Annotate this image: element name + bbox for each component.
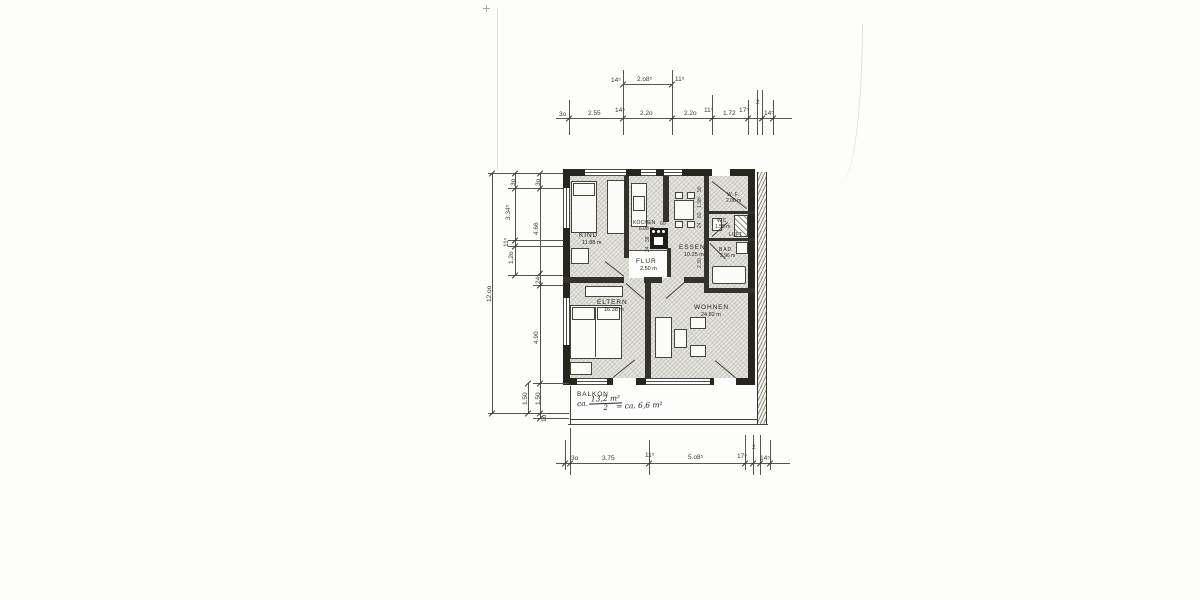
room-area-flur: 2.50 m: [640, 266, 657, 272]
wall-segment: [626, 169, 641, 176]
extension-line: [508, 246, 563, 247]
window: [585, 169, 626, 176]
room-area-eltern: 16.38 m: [604, 307, 624, 313]
eltern-wardrobe: [585, 286, 623, 297]
balcony-door-opening: [714, 378, 736, 385]
balcony-edge-line: [568, 424, 768, 425]
dim-label: 1.38⁵: [698, 196, 703, 208]
dim-label: 11⁵: [704, 107, 713, 114]
room-label-wohnen: WOHNEN: [694, 304, 729, 311]
interior-wall: [704, 176, 709, 290]
interior-wall: [663, 176, 669, 222]
dining-chair: [675, 221, 683, 228]
window: [563, 188, 570, 228]
wall-segment: [748, 169, 755, 385]
room-area-bad: 3.96 m: [720, 254, 735, 259]
extension-line: [570, 428, 571, 475]
dim-label: 60: [698, 212, 703, 218]
extension-line: [762, 90, 763, 135]
room-label-flur: FLUR: [636, 258, 657, 265]
dim-label: 90: [698, 186, 703, 192]
extension-line: [623, 70, 624, 135]
dim-label: 24: [698, 222, 703, 228]
balkon-note-denominator: 2: [603, 404, 608, 412]
dim-label: 14⁵: [760, 455, 770, 462]
kind-bed-pillow: [573, 183, 595, 196]
extension-line: [757, 90, 758, 135]
dim-label: 2: [756, 99, 760, 106]
dim-label: 11⁵: [645, 452, 654, 459]
dimension-line: [556, 463, 790, 464]
dim-label: 4.66: [533, 222, 540, 235]
dim-label: 14⁵: [615, 107, 625, 114]
wall-segment: [736, 378, 755, 385]
dim-label: 3o: [535, 179, 542, 186]
dim-label: 2.30: [698, 258, 703, 268]
wall-segment: [682, 169, 712, 176]
room-label-kind: KIND: [579, 232, 598, 239]
dim-label: 1.72: [723, 110, 736, 117]
coffee-table: [674, 329, 687, 348]
dim-label: 2: [752, 444, 756, 451]
washbasin: [736, 242, 748, 254]
registration-mark: [486, 5, 487, 12]
dim-label: 1.50: [522, 392, 529, 405]
dim-label: 38: [646, 236, 651, 242]
kind-dresser: [571, 248, 589, 264]
interior-wall: [624, 176, 629, 258]
dim-label: 3.75: [602, 455, 615, 462]
dim-label: 24: [535, 277, 542, 284]
dim-label: 5.o8⁵: [688, 454, 703, 461]
dim-label: 1.50: [535, 392, 542, 405]
extension-line: [770, 440, 771, 470]
interior-wall: [684, 277, 704, 283]
room-label-eltern: ELTERN: [597, 299, 628, 306]
eltern-dresser: [570, 362, 592, 375]
interior-wall: [667, 248, 671, 277]
scan-curve-artifact: [840, 24, 863, 184]
window: [664, 169, 682, 176]
interior-wall: [563, 277, 624, 283]
balcony-door-opening: [613, 378, 636, 385]
dim-label: 4.90: [533, 331, 540, 344]
room-label-essen: ESSEN: [679, 244, 706, 251]
dim-label: 11⁵: [503, 238, 510, 247]
wall-segment: [636, 378, 646, 385]
bathtub: [712, 266, 746, 284]
floor-plan-scan: KIND 11.88 m KOCHEN 6.08 m ESSEN 10.25 m…: [0, 0, 1200, 600]
armchair: [690, 345, 706, 357]
extension-line: [508, 188, 563, 189]
armchair: [690, 317, 706, 329]
extension-line: [753, 435, 754, 475]
party-wall-hatched: [757, 172, 767, 425]
balkon-note-result: = ca. 6,6 m²: [616, 401, 663, 411]
dining-table: [674, 200, 694, 220]
dim-label: 2.55: [588, 110, 601, 117]
balcony-edge-line: [570, 419, 758, 420]
dim-label: 2.o8⁵: [637, 76, 652, 83]
room-area-kind: 11.88 m: [582, 240, 601, 246]
eltern-bed-divider: [595, 307, 596, 357]
window: [577, 378, 607, 385]
dim-label: 3o: [559, 111, 566, 118]
window: [563, 298, 570, 345]
room-label-luft: LUFT: [729, 233, 742, 238]
dim-label: 3.34⁵: [505, 205, 512, 220]
wall-segment: [563, 228, 570, 298]
dim-label: 1o: [541, 415, 548, 422]
interior-wall: [645, 283, 651, 378]
dim-label: 60: [660, 222, 666, 227]
window: [646, 378, 710, 385]
extension-line: [508, 240, 563, 241]
extension-line: [488, 173, 563, 174]
dim-label: 14⁵: [611, 77, 621, 84]
room-area-wc: 1.55 m: [715, 225, 730, 230]
dim-label: 24: [646, 246, 651, 252]
dim-label: 3o: [571, 455, 578, 462]
dim-label: 2.2o: [640, 110, 653, 117]
interior-wall: [704, 288, 755, 293]
sofa: [655, 317, 672, 358]
dim-label: 1.2o: [508, 251, 515, 264]
interior-wall: [704, 238, 755, 241]
dining-chair: [675, 192, 683, 199]
kind-wardrobe: [607, 180, 625, 234]
room-area-wohnen: 24.82 m: [701, 312, 721, 318]
dining-chair: [687, 221, 695, 228]
dim-label: 14⁵: [764, 110, 774, 117]
extension-line: [672, 70, 673, 135]
dim-label: 17⁵: [737, 453, 747, 460]
room-area-wf: 2.06 m: [726, 199, 741, 204]
kitchen-sink: [633, 196, 645, 211]
wall-segment: [656, 169, 664, 176]
dim-label: 17⁵: [739, 107, 749, 114]
eltern-bed-pillow: [572, 307, 595, 320]
scan-crease-line: [497, 8, 498, 170]
balkon-note-prefix: ca.: [577, 400, 588, 408]
dim-label: 2.2o: [684, 110, 697, 117]
window: [641, 169, 656, 176]
dining-chair: [687, 192, 695, 199]
dim-label: 11⁵: [675, 76, 684, 83]
room-area-kochen: 6.08 m: [639, 227, 654, 232]
dim-label-overall: 12.oo: [486, 286, 493, 302]
stove-oven-door: [654, 237, 663, 245]
stove-burner: [657, 230, 660, 233]
stove-burner: [662, 230, 665, 233]
interior-wall: [704, 211, 755, 214]
entry-door-opening: [712, 169, 730, 176]
wall-segment: [563, 169, 570, 188]
dimension-line: [623, 84, 672, 85]
dim-label: 3o: [510, 179, 517, 186]
